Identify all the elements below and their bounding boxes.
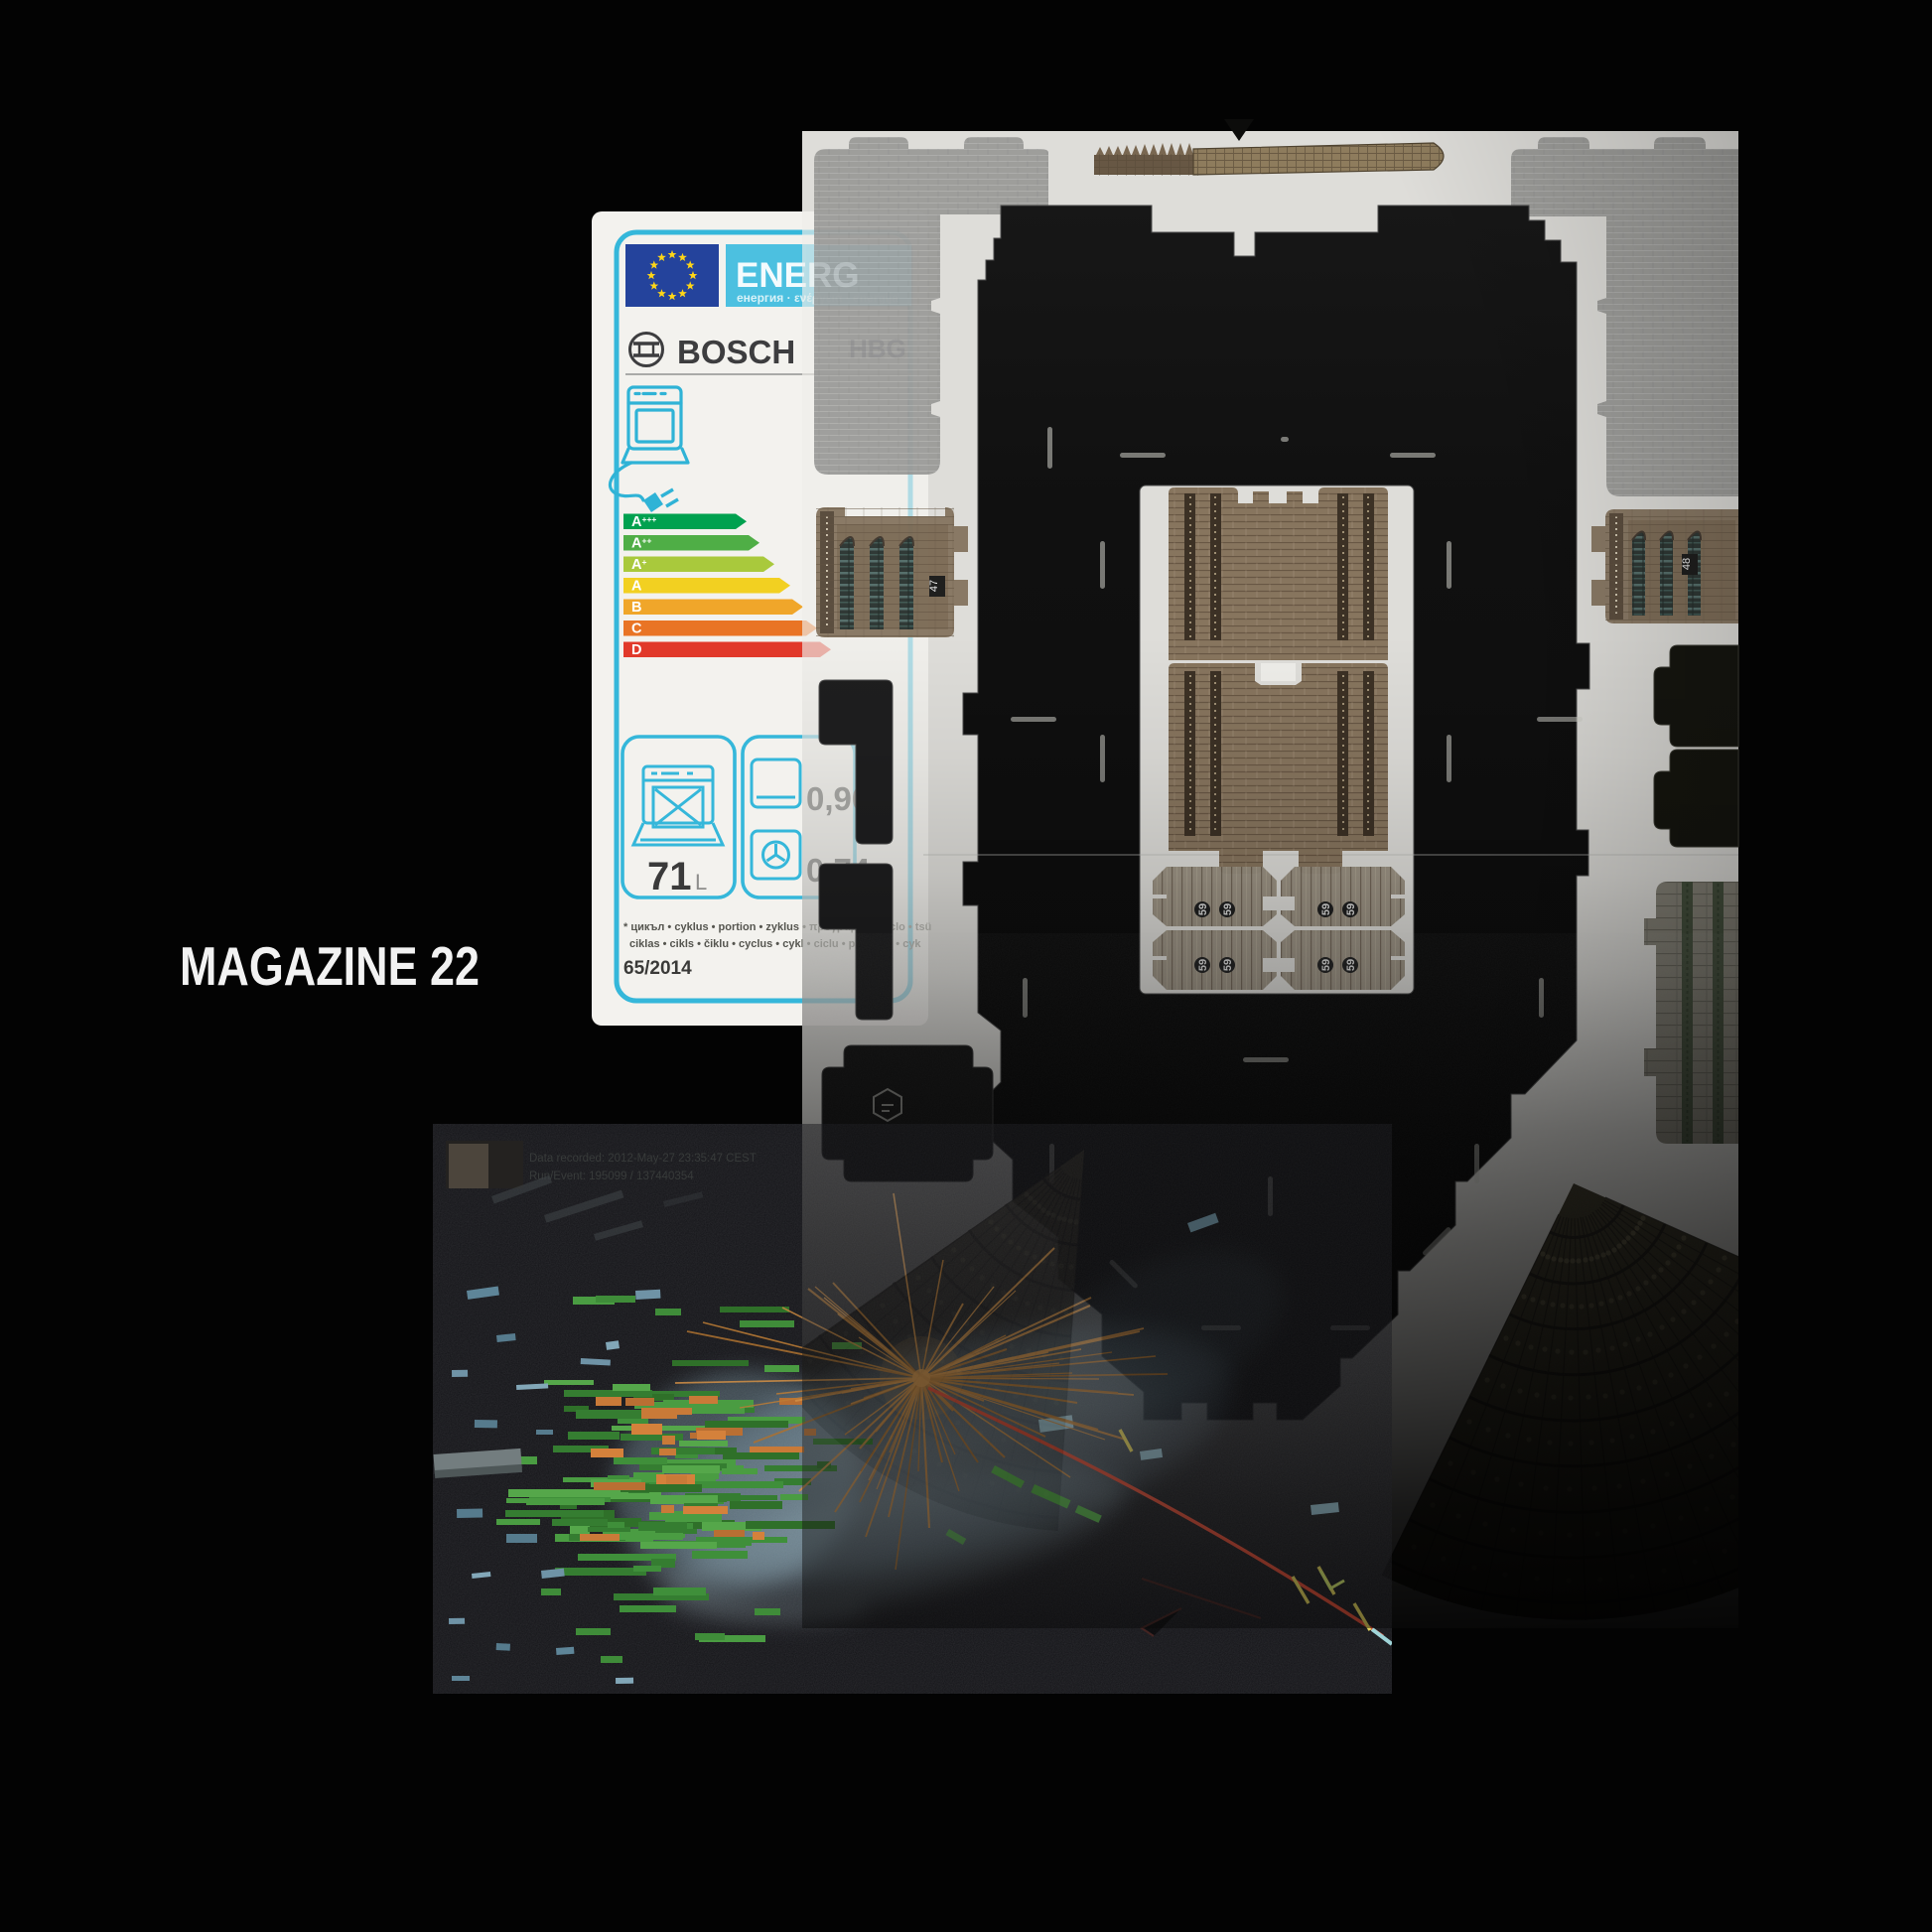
svg-text:65/2014: 65/2014 (623, 958, 692, 979)
svg-text:A: A (631, 579, 642, 595)
svg-text:MAGAZINE 22: MAGAZINE 22 (180, 935, 480, 997)
svg-text:71: 71 (647, 855, 692, 898)
svg-text:BOSCH: BOSCH (677, 334, 795, 370)
svg-text:B: B (631, 600, 641, 616)
svg-text:L: L (695, 870, 707, 895)
svg-text:D: D (631, 642, 641, 658)
svg-text:C: C (631, 621, 642, 637)
